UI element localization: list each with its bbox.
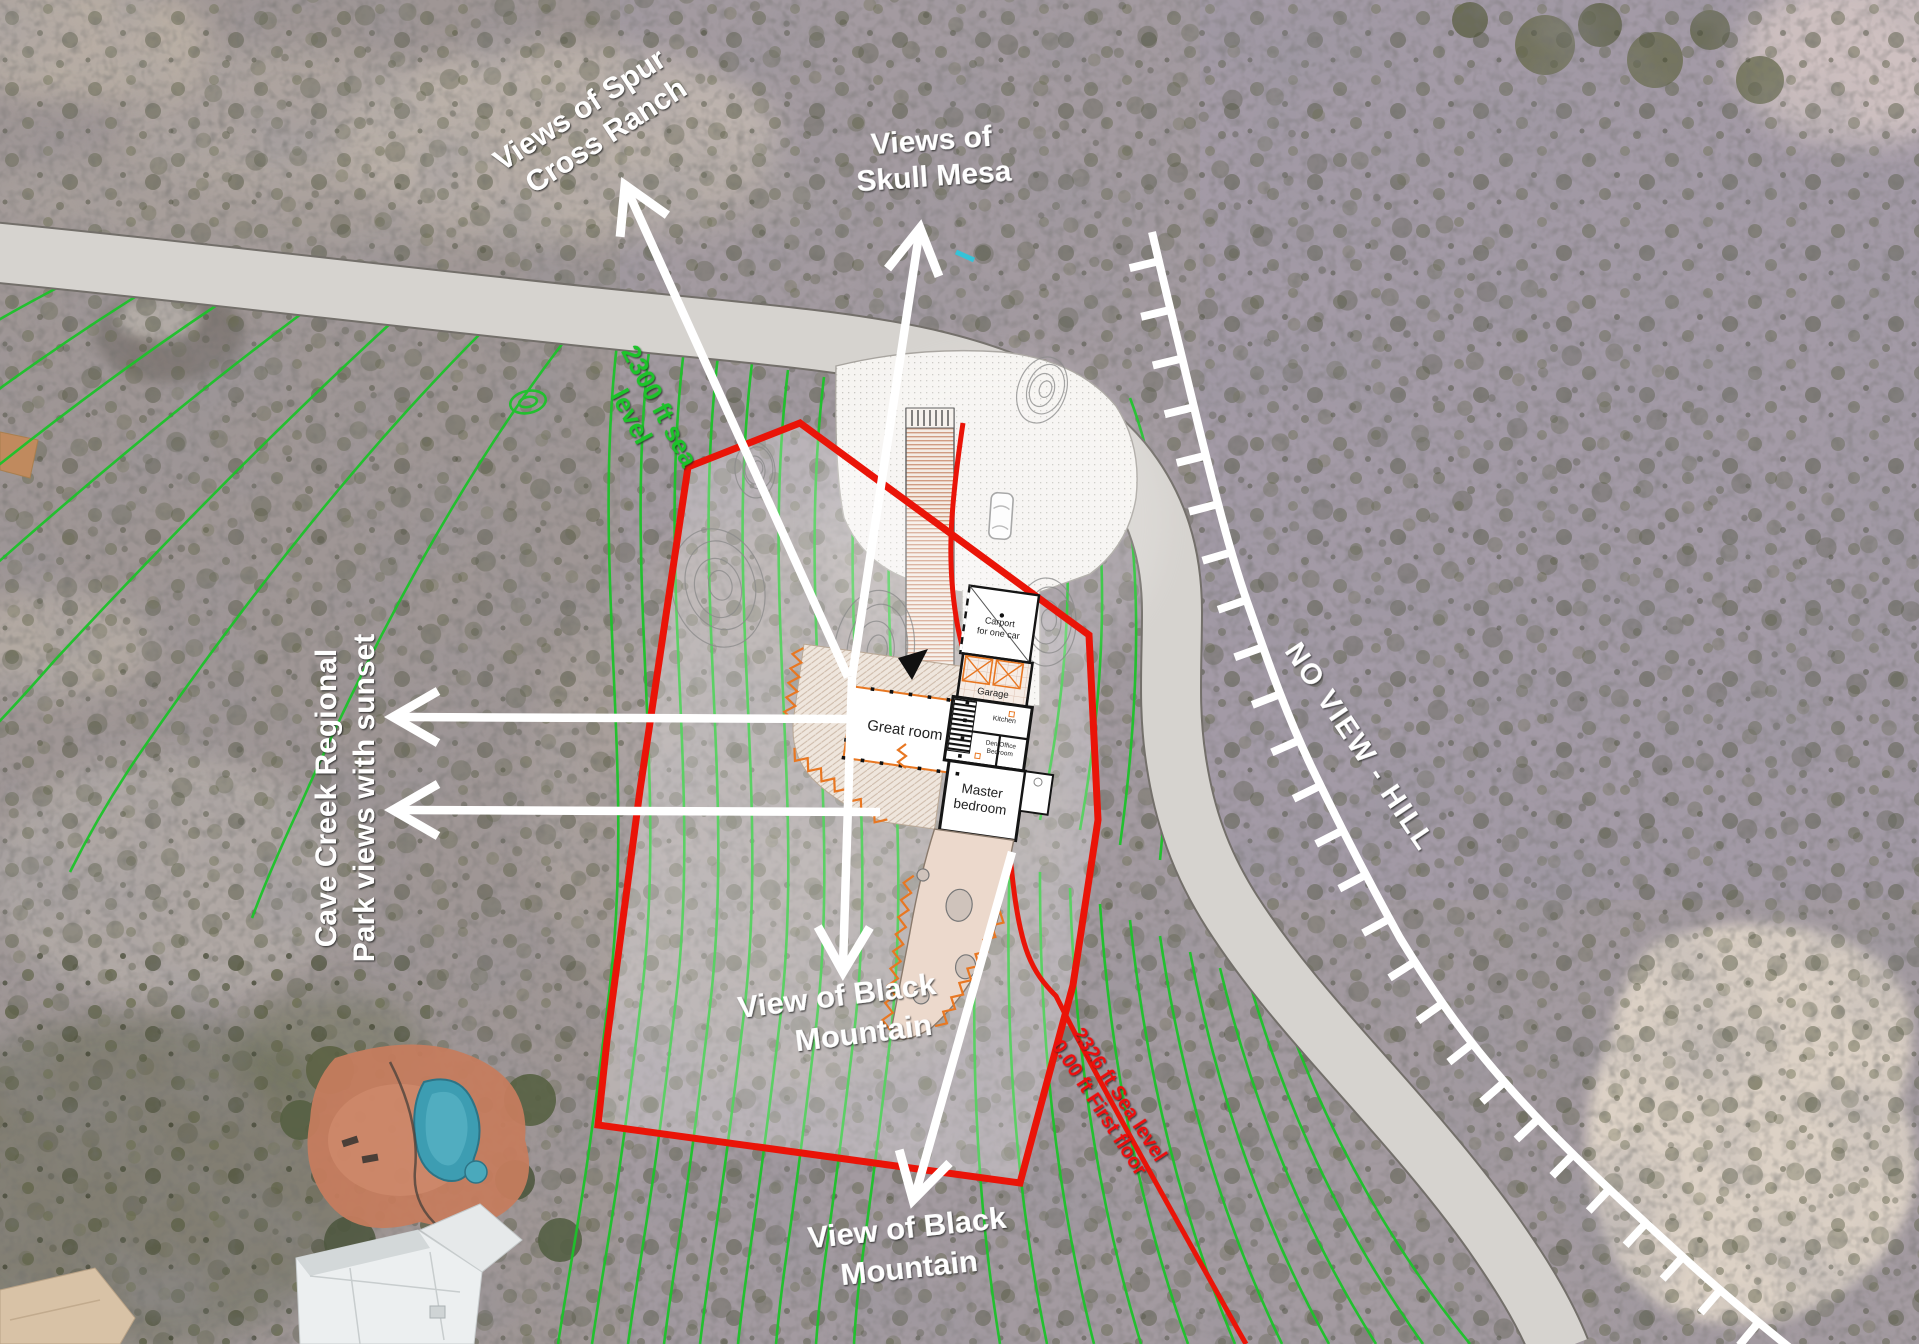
- kitchen-core: [944, 696, 1032, 771]
- master-bath: [1020, 771, 1053, 815]
- arrow-cave-creek-1: [398, 717, 852, 719]
- site-plan-map: Great room Master bedroom Carport for on…: [0, 0, 1919, 1344]
- label-cave-creek-1: Cave Creek Regional: [310, 649, 343, 947]
- arrow-cave-creek-2: [398, 810, 880, 812]
- site-plan-screenshot: Great room Master bedroom Carport for on…: [0, 0, 1919, 1344]
- spa: [465, 1161, 487, 1183]
- label-cave-creek-2: Park views with sunset: [348, 634, 381, 962]
